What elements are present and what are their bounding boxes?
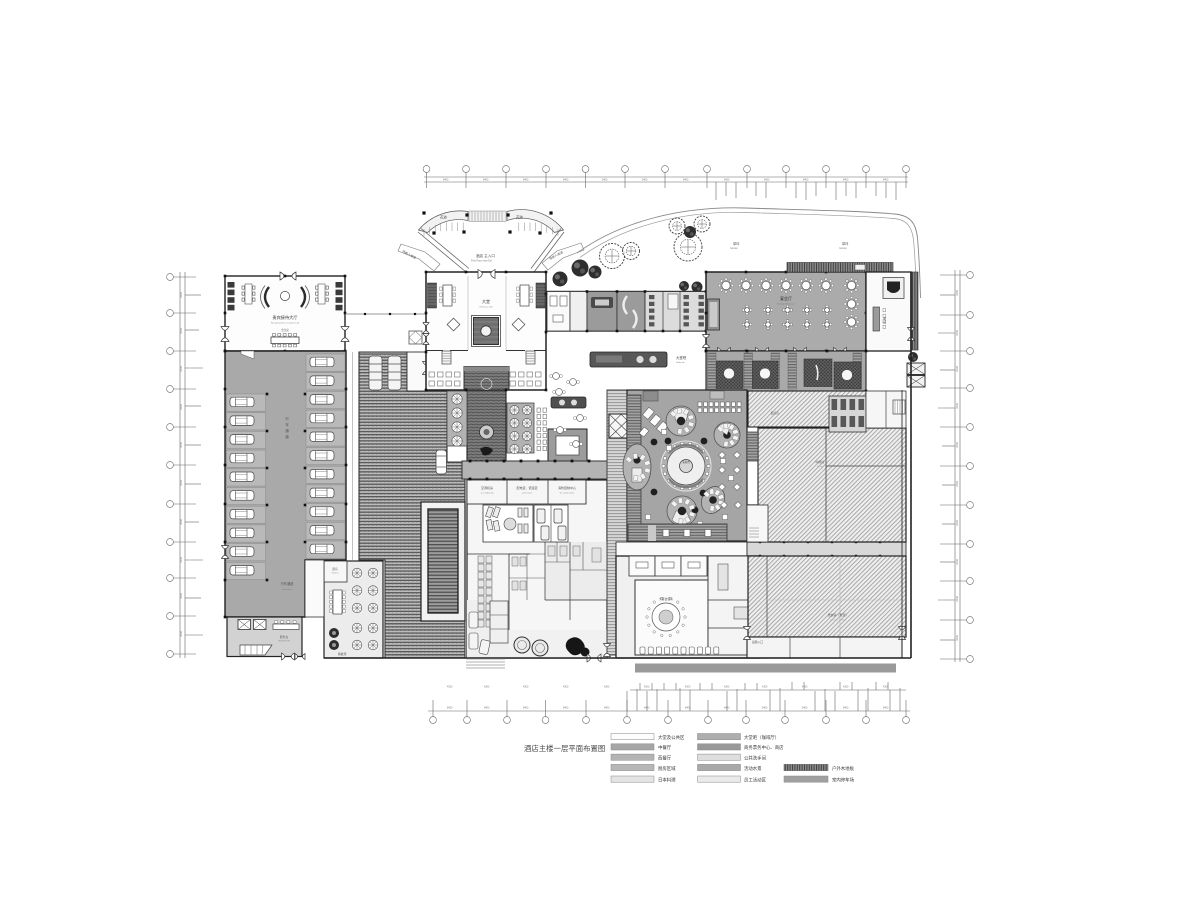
svg-text:服务台: 服务台 <box>883 317 887 325</box>
svg-text:8400: 8400 <box>762 707 768 710</box>
svg-text:活动水景: 活动水景 <box>744 765 762 772</box>
svg-text:drive lane: drive lane <box>282 588 292 591</box>
svg-text:8400: 8400 <box>724 707 730 710</box>
svg-text:大堂吧（咖啡厅）: 大堂吧（咖啡厅） <box>744 734 779 741</box>
svg-text:4200: 4200 <box>802 686 808 689</box>
svg-text:8400: 8400 <box>843 707 849 710</box>
svg-text:车: 车 <box>285 422 289 427</box>
svg-text:会议桌: 会议桌 <box>281 328 289 332</box>
svg-text:酒店 主入口: 酒店 主入口 <box>476 253 495 258</box>
svg-text:面点房: 面点房 <box>771 411 780 415</box>
svg-text:8400: 8400 <box>764 179 770 182</box>
svg-text:洗衣房（暂定）: 洗衣房（暂定） <box>827 612 848 617</box>
svg-text:Garden: Garden <box>730 247 739 250</box>
svg-text:商务票务中心、商店: 商务票务中心、商店 <box>744 744 784 751</box>
svg-text:8400: 8400 <box>683 179 689 182</box>
svg-text:8400: 8400 <box>685 707 691 710</box>
svg-text:服务台: 服务台 <box>280 635 289 639</box>
svg-text:8400: 8400 <box>180 404 183 410</box>
svg-text:大宴会包房: 大宴会包房 <box>659 597 673 601</box>
svg-text:大堂及公共区: 大堂及公共区 <box>658 734 685 741</box>
svg-text:8400: 8400 <box>563 707 569 710</box>
svg-text:Receptiondesk reception hall: Receptiondesk reception hall <box>271 322 300 325</box>
svg-text:4200: 4200 <box>563 686 569 689</box>
svg-text:8400: 8400 <box>956 596 959 602</box>
svg-text:First Floor main Ent: First Floor main Ent <box>471 260 492 263</box>
svg-text:宴会厅: 宴会厅 <box>780 295 792 301</box>
svg-text:8400: 8400 <box>883 179 889 182</box>
svg-text:西餐厅: 西餐厅 <box>658 755 672 762</box>
svg-text:员工活动区: 员工活动区 <box>744 776 767 783</box>
svg-text:行车通道: 行车通道 <box>281 581 295 586</box>
svg-text:草坪: 草坪 <box>842 241 849 246</box>
svg-text:The Lau. wor/100: The Lau. wor/100 <box>830 620 846 622</box>
svg-text:8400: 8400 <box>180 593 183 599</box>
svg-text:8400: 8400 <box>883 707 889 710</box>
svg-text:Entrance hall: Entrance hall <box>480 306 493 309</box>
svg-text:8400: 8400 <box>483 179 489 182</box>
svg-text:8400: 8400 <box>180 442 183 448</box>
svg-text:8400: 8400 <box>802 707 808 710</box>
svg-text:4200: 4200 <box>644 686 650 689</box>
svg-text:RECEPTION: RECEPTION <box>278 641 290 643</box>
svg-text:消防控制中心: 消防控制中心 <box>558 485 576 490</box>
svg-text:8400: 8400 <box>956 330 959 336</box>
svg-text:8400: 8400 <box>843 179 849 182</box>
svg-text:8400: 8400 <box>180 292 183 298</box>
svg-text:kitchen: kitchen <box>817 465 823 468</box>
svg-text:8400: 8400 <box>956 559 959 565</box>
svg-text:8400: 8400 <box>724 179 730 182</box>
svg-text:配电室、值班室: 配电室、值班室 <box>516 485 537 490</box>
svg-text:8400: 8400 <box>180 631 183 637</box>
svg-text:air conditioning: air conditioning <box>481 492 494 495</box>
svg-text:中餐厅: 中餐厅 <box>658 744 672 751</box>
svg-text:后勤入口: 后勤入口 <box>752 640 763 644</box>
svg-text:8400: 8400 <box>523 179 529 182</box>
svg-text:8400: 8400 <box>180 557 183 563</box>
svg-text:4200: 4200 <box>447 686 453 689</box>
svg-text:贵宾接待大厅: 贵宾接待大厅 <box>272 314 297 321</box>
svg-text:4200: 4200 <box>685 686 691 689</box>
svg-text:大堂吧: 大堂吧 <box>676 355 687 360</box>
svg-text:4200: 4200 <box>724 686 730 689</box>
svg-text:8400: 8400 <box>956 442 959 448</box>
svg-text:Garden: Garden <box>839 247 848 250</box>
svg-text:4200: 4200 <box>604 686 610 689</box>
svg-text:行: 行 <box>285 416 289 421</box>
svg-text:道: 道 <box>285 434 289 439</box>
svg-text:8400: 8400 <box>180 328 183 334</box>
svg-text:8400: 8400 <box>563 179 569 182</box>
svg-text:厨房: 厨房 <box>332 567 338 571</box>
svg-text:8400: 8400 <box>484 707 490 710</box>
svg-text:铁板烧: 铁板烧 <box>338 652 347 656</box>
svg-text:8400: 8400 <box>642 179 648 182</box>
svg-text:8400: 8400 <box>644 707 650 710</box>
svg-text:4200: 4200 <box>762 686 768 689</box>
svg-text:4200: 4200 <box>843 686 849 689</box>
svg-text:8400: 8400 <box>180 366 183 372</box>
svg-text:草坪: 草坪 <box>733 241 740 246</box>
svg-text:Kitchen: Kitchen <box>332 572 339 575</box>
svg-text:8400: 8400 <box>604 707 610 710</box>
svg-text:大堂: 大堂 <box>482 298 490 304</box>
svg-text:8400: 8400 <box>956 520 959 526</box>
svg-text:8400: 8400 <box>523 707 529 710</box>
svg-text:花池: 花池 <box>440 215 447 220</box>
svg-text:酒店主楼一层平面布置图: 酒店主楼一层平面布置图 <box>524 744 605 753</box>
svg-text:通: 通 <box>285 428 289 433</box>
svg-text:4200: 4200 <box>484 686 490 689</box>
svg-text:8400: 8400 <box>956 290 959 296</box>
svg-text:8400: 8400 <box>956 366 959 372</box>
svg-text:4200: 4200 <box>883 686 889 689</box>
svg-text:8400: 8400 <box>956 403 959 409</box>
svg-text:日本料理: 日本料理 <box>658 776 676 783</box>
svg-text:空调机房: 空调机房 <box>481 485 493 490</box>
svg-text:8400: 8400 <box>602 179 608 182</box>
svg-text:4200: 4200 <box>523 686 529 689</box>
svg-text:中厨房: 中厨房 <box>815 459 824 464</box>
svg-text:演奏台: 演奏台 <box>682 460 690 464</box>
svg-text:8400: 8400 <box>180 480 183 486</box>
svg-text:8400: 8400 <box>443 179 449 182</box>
svg-text:室内停车场: 室内停车场 <box>832 776 855 783</box>
svg-text:fire control center: fire control center <box>560 492 575 495</box>
svg-text:户外木地板: 户外木地板 <box>832 765 855 772</box>
svg-text:8400: 8400 <box>956 481 959 487</box>
svg-text:8400: 8400 <box>956 635 959 641</box>
svg-text:control room: control room <box>522 492 533 495</box>
svg-text:Banquet Entrance: Banquet Entrance <box>777 303 795 306</box>
svg-text:花池: 花池 <box>516 215 523 220</box>
svg-text:8400: 8400 <box>447 707 453 710</box>
svg-text:8400: 8400 <box>803 179 809 182</box>
svg-text:lobby bar: lobby bar <box>676 361 685 364</box>
svg-text:8400: 8400 <box>180 519 183 525</box>
svg-text:公共洗手间: 公共洗手间 <box>744 755 766 762</box>
svg-text:厨房区域: 厨房区域 <box>658 765 676 772</box>
